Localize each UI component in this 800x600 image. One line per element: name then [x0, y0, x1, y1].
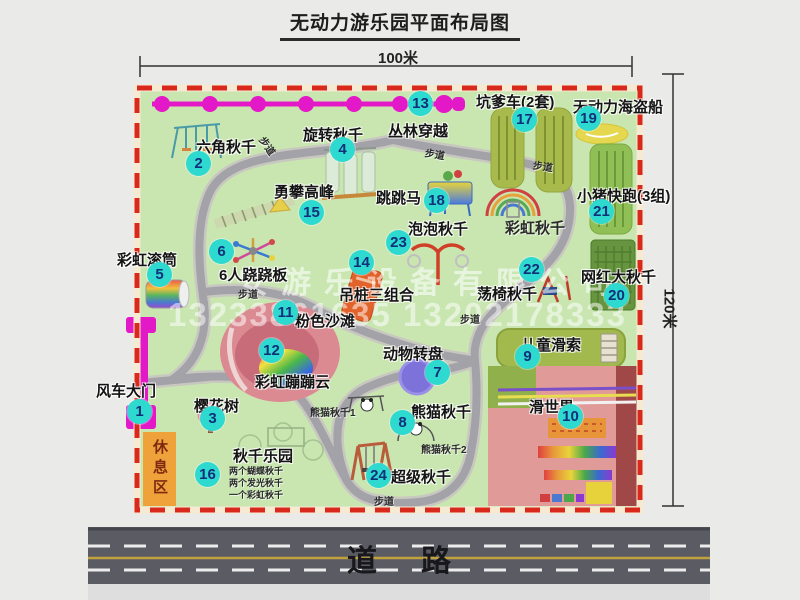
page-title: 无动力游乐园平面布局图	[280, 8, 520, 41]
attraction-badge-23[interactable]: 23	[386, 230, 411, 255]
attraction-badge-21[interactable]: 21	[589, 199, 614, 224]
attraction-badge-4[interactable]: 4	[330, 137, 355, 162]
footpath-label: 步道	[532, 157, 554, 175]
attraction-badge-20[interactable]: 20	[604, 283, 629, 308]
park-layout-map: 无动力游乐园平面布局图 100米 120米 安游乐设备有限公司 13233861…	[0, 0, 800, 600]
attraction-badge-2[interactable]: 2	[186, 151, 211, 176]
attraction-label-1: 风车大门	[96, 380, 156, 401]
height-dimension-label: 120米	[660, 288, 681, 328]
attraction-badge-5[interactable]: 5	[147, 262, 172, 287]
footpath-label: 步道	[424, 144, 446, 162]
attraction-label-17: 坑爹车(2套)	[476, 91, 554, 112]
attraction-label-14: 吊桩三组合	[339, 284, 414, 305]
footpath-label: 步道	[460, 311, 480, 326]
attraction-label-13: 丛林穿越	[388, 120, 448, 141]
attraction-badge-9[interactable]: 9	[515, 344, 540, 369]
attraction-badge-13[interactable]: 13	[408, 91, 433, 116]
attraction-badge-15[interactable]: 15	[299, 200, 324, 225]
attraction-label-22: 荡椅秋千	[477, 283, 537, 304]
attraction-label-8: 熊猫秋千	[411, 401, 471, 422]
attraction-badge-1[interactable]: 1	[127, 399, 152, 424]
attraction-badge-11[interactable]: 11	[273, 300, 298, 325]
attraction-badge-18[interactable]: 18	[424, 188, 449, 213]
panda-swing-2-label: 熊猫秋千2	[421, 441, 467, 456]
attraction-badge-14[interactable]: 14	[349, 250, 374, 275]
footpath-label: 步道	[256, 133, 280, 158]
swing-park-note-3: 一个彩虹秋千	[229, 488, 283, 501]
attraction-label-15: 勇攀高峰	[274, 181, 334, 202]
attraction-label-12: 彩虹蹦蹦云	[255, 371, 330, 392]
attraction-label-6: 6人跷跷板	[219, 264, 287, 285]
attraction-badge-10[interactable]: 10	[558, 404, 583, 429]
attraction-label-11: 粉色沙滩	[295, 310, 355, 331]
attraction-badge-22[interactable]: 22	[519, 257, 544, 282]
attraction-label-24: 超级秋千	[391, 466, 451, 487]
attraction-label-23: 泡泡秋千	[408, 218, 468, 239]
rainbow-swing-label: 彩虹秋千	[505, 217, 565, 238]
attraction-badge-16[interactable]: 16	[195, 462, 220, 487]
attraction-badge-17[interactable]: 17	[512, 107, 537, 132]
attraction-label-18: 跳跳马	[376, 187, 421, 208]
panda-swing-1-label: 熊猫秋千1	[310, 404, 356, 419]
attraction-label-16: 秋千乐园	[233, 445, 293, 466]
attraction-badge-24[interactable]: 24	[366, 463, 391, 488]
attraction-badge-12[interactable]: 12	[259, 338, 284, 363]
attraction-badge-3[interactable]: 3	[200, 406, 225, 431]
width-dimension-label: 100米	[378, 47, 418, 68]
attraction-badge-8[interactable]: 8	[390, 410, 415, 435]
footpath-label: 步道	[238, 286, 258, 301]
footpath-label: 步道	[374, 493, 394, 508]
attraction-badge-7[interactable]: 7	[425, 360, 450, 385]
attraction-badge-6[interactable]: 6	[209, 239, 234, 264]
attraction-badge-19[interactable]: 19	[576, 106, 601, 131]
